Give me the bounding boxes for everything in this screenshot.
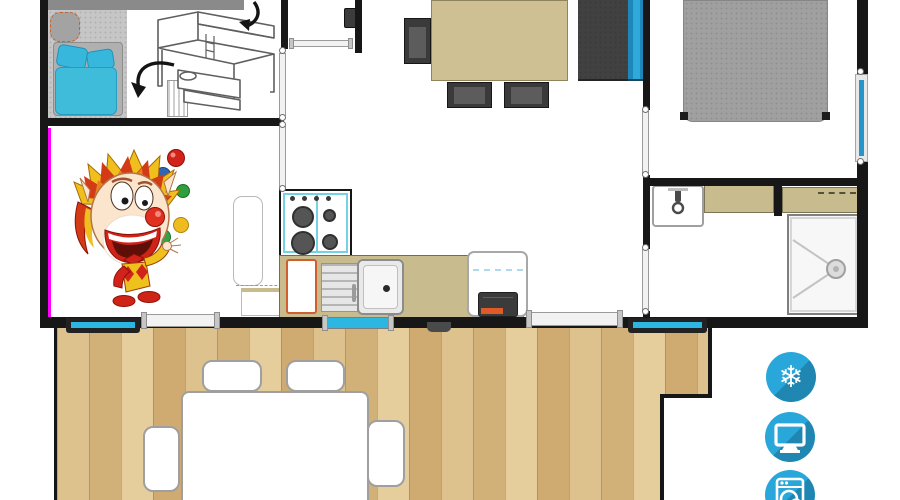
door-leaf xyxy=(279,126,286,188)
burner xyxy=(291,231,315,255)
hob-knob xyxy=(302,196,307,201)
arrow-icon xyxy=(232,0,262,32)
wall-bedroom-left xyxy=(40,118,284,126)
wall-hall-b xyxy=(355,0,362,53)
faucet-icon xyxy=(654,187,702,225)
kitchen-faucet xyxy=(352,284,356,302)
door-cap xyxy=(214,312,220,329)
counter-vent xyxy=(818,192,856,194)
window-hinge xyxy=(857,68,864,75)
sink-basin xyxy=(363,265,398,309)
hob-divider xyxy=(316,195,318,253)
door-hinge xyxy=(279,121,286,128)
outdoor-chair xyxy=(202,360,262,392)
kitchen-side-box xyxy=(241,288,283,316)
air-conditioning-badge: ❄ xyxy=(766,352,816,402)
mobile-home-floor-plan: ❄ xyxy=(0,0,900,500)
duvet xyxy=(55,67,117,115)
wall-divider-top xyxy=(643,0,650,110)
window-hinge xyxy=(857,158,864,165)
bed-foot xyxy=(680,112,688,120)
washing-machine-icon xyxy=(765,470,815,500)
burner xyxy=(292,206,314,228)
dining-chair xyxy=(504,82,549,108)
side-window-glass xyxy=(859,80,864,156)
deck-edge xyxy=(663,394,712,398)
sofa xyxy=(578,0,628,81)
deck-edge xyxy=(708,326,712,397)
washbasin xyxy=(652,185,704,227)
dining-table xyxy=(431,0,568,81)
hob-knob xyxy=(314,196,319,201)
door-hinge xyxy=(642,106,649,113)
burner xyxy=(323,209,336,222)
deck-edge xyxy=(660,394,664,500)
door-leaf xyxy=(279,53,286,116)
dining-chair xyxy=(447,82,492,108)
door-cap xyxy=(348,38,353,49)
door-leaf xyxy=(289,40,353,47)
door-cap xyxy=(141,312,147,329)
gas-hob xyxy=(279,189,352,257)
snowflake-icon: ❄ xyxy=(766,352,816,402)
kitchen-sink xyxy=(357,259,404,315)
outdoor-table xyxy=(181,391,369,500)
dining-chair xyxy=(404,18,431,64)
arrow-icon xyxy=(128,56,178,100)
deck-upper xyxy=(57,328,709,397)
door-swing-dashes xyxy=(236,285,282,286)
television-badge xyxy=(765,412,815,462)
wall-left xyxy=(40,0,48,328)
wall-divider-mid xyxy=(643,175,650,249)
window-mid xyxy=(325,317,393,329)
fridge-watermark xyxy=(473,269,523,271)
rug-seat xyxy=(50,12,80,42)
washing-machine-badge xyxy=(765,470,815,500)
wall-bathroom-top xyxy=(650,178,868,186)
door-hinge xyxy=(279,114,286,121)
deck-window-glass xyxy=(633,322,702,328)
highlight-wall-strip xyxy=(48,128,51,318)
door-leaf xyxy=(642,249,649,311)
hob-knob xyxy=(290,196,295,201)
sink-drain xyxy=(383,285,390,292)
deck-edge xyxy=(54,326,57,500)
double-bed xyxy=(683,0,828,122)
window-cap xyxy=(388,315,394,331)
outdoor-chair xyxy=(143,426,180,492)
door-hinge xyxy=(279,47,286,54)
bed-foot xyxy=(822,112,830,120)
appliance-accent xyxy=(481,308,503,314)
door-hinge xyxy=(279,185,286,192)
door-cap xyxy=(526,310,532,328)
wall-bathroom-inner xyxy=(774,186,782,216)
outdoor-chair xyxy=(367,420,405,487)
deck-window-glass xyxy=(71,322,135,328)
door-leaf xyxy=(642,111,649,174)
door-hinge xyxy=(642,308,649,315)
door-hinge xyxy=(642,244,649,251)
door-cap xyxy=(617,310,623,328)
hob-knob xyxy=(326,196,331,201)
deck-step-handle xyxy=(427,322,451,332)
window-cap xyxy=(322,315,328,331)
burner xyxy=(322,234,338,250)
door-cap xyxy=(289,38,294,49)
door-hinge xyxy=(642,171,649,178)
shower xyxy=(787,214,860,315)
open-door-leaf xyxy=(233,196,263,286)
dark-appliance xyxy=(478,292,518,317)
sliding-door xyxy=(143,314,220,327)
bathroom-counter-left xyxy=(704,185,774,213)
bathroom-counter-right xyxy=(782,187,858,213)
appliance-line xyxy=(483,297,513,298)
shower-door-drain xyxy=(789,216,858,313)
juggling-clown-illustration xyxy=(72,146,222,308)
wall-hall-a xyxy=(281,0,288,49)
tv-icon xyxy=(765,412,815,462)
sliding-door xyxy=(529,312,620,326)
cabinet-orange-front xyxy=(286,259,317,314)
fridge xyxy=(467,251,528,317)
outdoor-chair xyxy=(286,360,345,392)
